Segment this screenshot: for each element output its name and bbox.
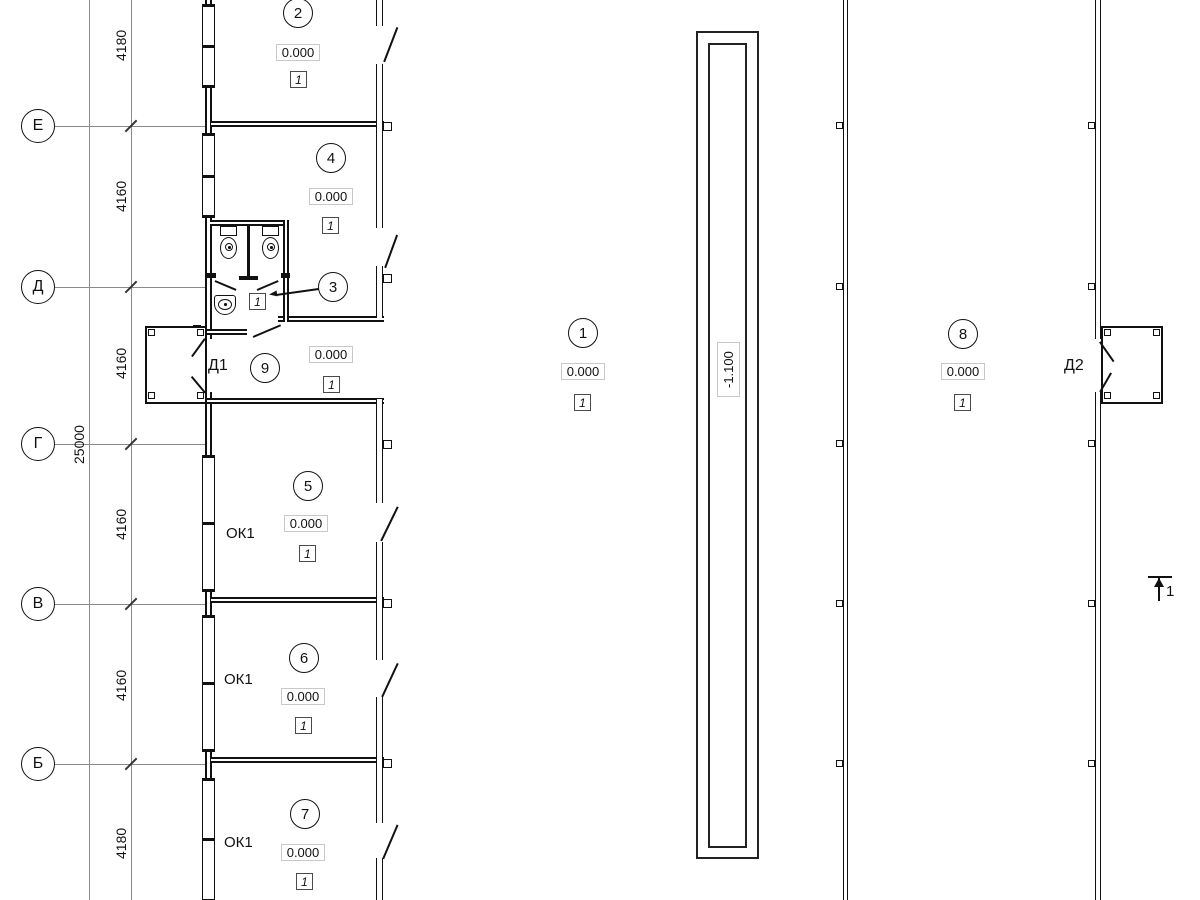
dimension-value: 4160 xyxy=(110,156,132,236)
axis-line-d xyxy=(55,287,211,288)
room-number-bubble: 1 xyxy=(568,318,598,348)
door-swing xyxy=(384,235,398,268)
wall-strip-right xyxy=(376,0,383,26)
wall-middle xyxy=(843,0,848,900)
floor-type-mark: 1 xyxy=(296,873,313,890)
pilaster xyxy=(383,274,392,283)
window-symbol xyxy=(202,133,215,218)
door-swing xyxy=(383,27,398,62)
pilaster xyxy=(836,600,843,607)
elevation-mark: 0.000 xyxy=(284,515,328,532)
axis-line-b xyxy=(55,764,211,765)
room-number: 5 xyxy=(304,478,312,495)
window-cap xyxy=(202,133,215,136)
door-swing xyxy=(380,506,398,541)
door-swing xyxy=(382,824,398,859)
dimension-value: 4180 xyxy=(110,803,132,883)
porch-post xyxy=(148,392,155,399)
window-cap xyxy=(202,455,215,458)
wall-strip-right xyxy=(376,542,383,660)
room-number: 4 xyxy=(327,150,335,167)
room-number-bubble: 6 xyxy=(289,643,319,673)
room-number-bubble: 5 xyxy=(293,471,323,501)
axis-bubble-g: Г xyxy=(21,427,55,461)
window-label: ОК1 xyxy=(226,525,255,542)
axis-label: Б xyxy=(33,755,44,773)
pilaster xyxy=(1088,440,1095,447)
window-cap xyxy=(202,85,215,88)
porch-post xyxy=(148,329,155,336)
room-number: 6 xyxy=(300,650,308,667)
pilaster xyxy=(1088,122,1095,129)
axis-bubble-e: Е xyxy=(21,109,55,143)
pilaster xyxy=(1088,283,1095,290)
window-mullion xyxy=(202,522,215,525)
porch-post xyxy=(1153,392,1160,399)
axis-label: Д xyxy=(33,278,44,296)
section-arrow-icon xyxy=(1154,578,1164,587)
room-number-bubble: 3 xyxy=(318,272,348,302)
floor-type-mark: 1 xyxy=(290,71,307,88)
room-number-bubble: 2 xyxy=(283,0,313,28)
pilaster xyxy=(1088,600,1095,607)
axis-label: Г xyxy=(34,435,43,453)
window-mullion xyxy=(202,682,215,685)
room-number: 7 xyxy=(301,806,309,823)
porch-post xyxy=(1104,392,1111,399)
wall-strip-right xyxy=(376,64,383,228)
floor-type-mark: 1 xyxy=(249,293,266,310)
toilet-dot xyxy=(270,246,273,249)
leader-arrow xyxy=(269,290,278,297)
pilaster xyxy=(1088,760,1095,767)
floor-type-mark: 1 xyxy=(322,217,339,234)
wc-stall-door-swing xyxy=(257,280,279,291)
pilaster xyxy=(383,440,392,449)
room-number: 9 xyxy=(261,360,269,377)
toilet-cistern xyxy=(262,226,279,236)
door-swing xyxy=(253,324,281,337)
porch-post xyxy=(1104,329,1111,336)
window-symbol xyxy=(202,455,215,592)
wall-axis-v xyxy=(211,597,384,603)
room-number: 3 xyxy=(329,279,337,296)
dimension-value: 4160 xyxy=(110,323,132,403)
window-cap xyxy=(202,778,215,781)
room-number-bubble: 9 xyxy=(250,353,280,383)
floor-type-mark: 1 xyxy=(323,376,340,393)
porch-post xyxy=(1153,329,1160,336)
room-number-bubble: 4 xyxy=(316,143,346,173)
wc-stall-door-swing xyxy=(215,280,237,291)
wall-room9-bottom xyxy=(196,398,384,404)
wall-wc-right xyxy=(283,220,289,322)
pit-elevation: -1.100 xyxy=(717,342,740,397)
elevation-mark: 0.000 xyxy=(561,363,605,380)
floor-type-mark: 1 xyxy=(574,394,591,411)
axis-label: Е xyxy=(33,117,44,135)
wall-axis-b xyxy=(211,757,384,763)
elevation-mark: 0.000 xyxy=(276,44,320,61)
wall-strip-right xyxy=(376,858,383,900)
window-symbol xyxy=(202,615,215,752)
elevation-mark: 0.000 xyxy=(309,188,353,205)
room-number-bubble: 7 xyxy=(290,799,320,829)
axis-label: В xyxy=(33,595,44,613)
door-label-d1: Д1 xyxy=(208,357,228,375)
room-number: 2 xyxy=(294,5,302,22)
window-label: ОК1 xyxy=(224,834,253,851)
elevation-mark: 0.000 xyxy=(309,346,353,363)
pilaster xyxy=(836,760,843,767)
window-symbol xyxy=(202,778,215,900)
room-number: 8 xyxy=(959,326,967,343)
dimension-value: 4160 xyxy=(110,484,132,564)
door-swing xyxy=(381,663,398,697)
window-cap xyxy=(202,615,215,618)
porch-post xyxy=(197,392,204,399)
window-cap xyxy=(202,215,215,218)
floor-type-mark: 1 xyxy=(295,717,312,734)
room-number: 1 xyxy=(579,325,587,342)
window-symbol xyxy=(202,4,215,88)
toilet-cistern xyxy=(220,226,237,236)
floor-type-mark: 1 xyxy=(954,394,971,411)
dimension-value: 4160 xyxy=(110,645,132,725)
window-mullion xyxy=(202,838,215,841)
pilaster xyxy=(383,122,392,131)
wc-stall-stub xyxy=(281,273,290,278)
floor-type-mark: 1 xyxy=(299,545,316,562)
window-cap xyxy=(202,4,215,7)
elevation-mark: 0.000 xyxy=(281,688,325,705)
toilet-dot xyxy=(228,246,231,249)
pilaster xyxy=(836,440,843,447)
section-mark-number: 1 xyxy=(1166,583,1174,600)
wall-axis-e xyxy=(211,121,384,127)
wc-stall-partition xyxy=(247,224,250,278)
room-number-bubble: 8 xyxy=(948,319,978,349)
wall-strip-right xyxy=(376,697,383,823)
window-mullion xyxy=(202,175,215,178)
elevation-mark: 0.000 xyxy=(941,363,985,380)
pilaster xyxy=(383,759,392,768)
porch-post xyxy=(197,329,204,336)
floor-plan-sheet: Е Д Г В Б 4180 4160 4160 4160 4160 4180 … xyxy=(0,0,1200,900)
pilaster xyxy=(383,599,392,608)
pilaster xyxy=(836,283,843,290)
wall-right-outer xyxy=(1095,0,1101,900)
door-label-d2: Д2 xyxy=(1064,357,1084,375)
wall-strip-right xyxy=(376,266,383,318)
window-mullion xyxy=(202,45,215,48)
wall-strip-right xyxy=(376,399,383,503)
axis-bubble-v: В xyxy=(21,587,55,621)
window-label: ОК1 xyxy=(224,671,253,688)
axis-line-e xyxy=(55,126,211,127)
axis-bubble-d: Д xyxy=(21,270,55,304)
wc-stall-partition-foot xyxy=(239,276,258,280)
dimension-total: 25000 xyxy=(66,400,92,490)
wc-stall-stub xyxy=(207,273,216,278)
sink-dot xyxy=(224,303,227,306)
pit-outline-inner xyxy=(708,43,747,848)
dimension-value: 4180 xyxy=(110,5,132,85)
pilaster xyxy=(836,122,843,129)
wall-room3-bottom xyxy=(278,316,384,322)
window-cap xyxy=(202,749,215,752)
axis-bubble-b: Б xyxy=(21,747,55,781)
axis-line-v xyxy=(55,604,211,605)
window-cap xyxy=(202,589,215,592)
elevation-mark: 0.000 xyxy=(281,844,325,861)
